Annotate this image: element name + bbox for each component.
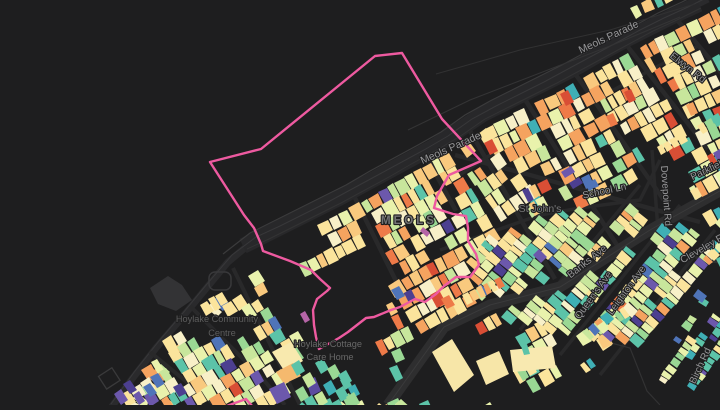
svg-text:MEOLS: MEOLS xyxy=(381,215,437,227)
svg-text:Centre: Centre xyxy=(208,328,236,338)
svg-text:Hoylake Community: Hoylake Community xyxy=(176,314,259,324)
svg-text:St John's: St John's xyxy=(519,203,562,215)
svg-text:Care Home: Care Home xyxy=(307,352,354,362)
svg-text:Hoylake Cottage: Hoylake Cottage xyxy=(294,339,362,349)
